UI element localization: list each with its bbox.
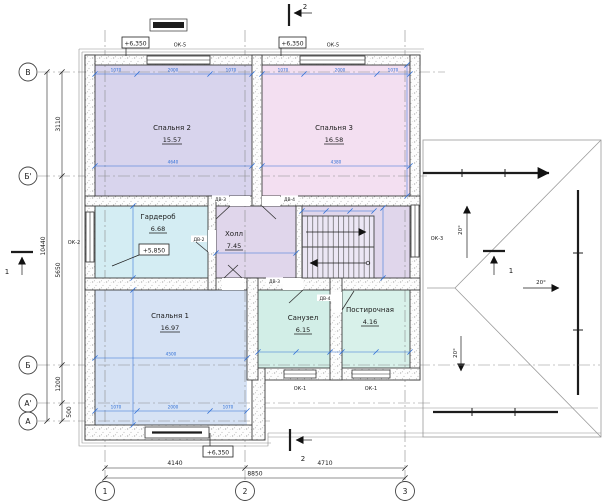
svg-text:1070: 1070 bbox=[278, 68, 289, 73]
section-marker-2-bottom: 2 bbox=[290, 429, 312, 463]
window-ok3: ОК-3 bbox=[411, 205, 443, 257]
axis-col-label: 3 bbox=[403, 487, 408, 496]
door-label: ДВ-3 bbox=[215, 197, 226, 203]
svg-text:4380: 4380 bbox=[331, 160, 342, 165]
svg-text:1070: 1070 bbox=[111, 68, 122, 73]
section-marker-2-top: 2 bbox=[289, 3, 312, 26]
dimensions-left: 3110 5650 1200 500 10440 bbox=[40, 69, 73, 423]
svg-text:8850: 8850 bbox=[247, 471, 262, 478]
dimensions-bottom: 4140 4710 8850 bbox=[102, 460, 407, 481]
room-name: Санузел bbox=[288, 314, 318, 322]
slope-angle-label: 20° bbox=[453, 348, 459, 358]
axis-row-label: А' bbox=[24, 399, 31, 408]
window-label: ОК-2 bbox=[68, 240, 80, 246]
room-name: Холл bbox=[225, 230, 243, 238]
axis-col-label: 1 bbox=[103, 487, 108, 496]
slope-angle-label: 20° bbox=[536, 280, 546, 286]
room-area: 16.97 bbox=[161, 324, 180, 332]
chimney bbox=[150, 19, 187, 31]
svg-text:2000: 2000 bbox=[168, 68, 179, 73]
axis-bubbles-bottom: 1 2 3 bbox=[96, 482, 415, 501]
level-mark-roof-left: +6,350 bbox=[122, 37, 149, 56]
svg-text:10440: 10440 bbox=[40, 236, 47, 255]
slope-angle-label: 20° bbox=[458, 225, 464, 235]
window-label: ОК-1 bbox=[365, 386, 377, 392]
door-label: ДВ-4 bbox=[284, 197, 295, 203]
axis-row-label: Б bbox=[25, 361, 30, 370]
room-laundry bbox=[342, 290, 410, 368]
room-name: Спальня 3 bbox=[315, 124, 353, 132]
level-value: +6,350 bbox=[207, 450, 229, 457]
room-area: 15.57 bbox=[163, 136, 182, 144]
axis-bubbles-left: В Б' Б А' А bbox=[19, 63, 37, 430]
door-label: ДВ-2 bbox=[193, 237, 204, 243]
section-marker-1-left: 1 bbox=[5, 252, 33, 276]
window-label: ОК-1 bbox=[294, 386, 306, 392]
axis-row-label: А bbox=[25, 417, 31, 426]
svg-text:5650: 5650 bbox=[55, 262, 62, 277]
level-value: +6,350 bbox=[281, 41, 303, 48]
svg-text:4640: 4640 bbox=[168, 160, 179, 165]
axis-col-label: 2 bbox=[243, 487, 248, 496]
svg-text:1070: 1070 bbox=[226, 68, 237, 73]
floor-plan-drawing: 20° 20° 20° 1 bbox=[0, 0, 611, 502]
axis-row-label: В bbox=[25, 68, 30, 77]
room-area: 6.15 bbox=[296, 326, 310, 334]
window-label: ОК-5 bbox=[174, 43, 186, 49]
plan-canvas: 20° 20° 20° 1 bbox=[0, 0, 611, 502]
svg-text:2000: 2000 bbox=[168, 405, 179, 410]
section-2-label: 2 bbox=[301, 455, 305, 463]
svg-text:4710: 4710 bbox=[317, 460, 332, 467]
room-name: Постирочная bbox=[346, 306, 394, 314]
door-label: ДВ-4 bbox=[319, 296, 330, 302]
svg-text:1070: 1070 bbox=[388, 68, 399, 73]
svg-text:2000: 2000 bbox=[335, 68, 346, 73]
level-mark-roof-right: +6,350 bbox=[279, 37, 306, 56]
door-label: ДВ-3 bbox=[269, 279, 280, 285]
window-bedroom1-bottom bbox=[145, 427, 209, 438]
window-ok1-right: ОК-1 bbox=[352, 370, 390, 392]
room-name: Гардероб bbox=[140, 213, 175, 221]
svg-text:3110: 3110 bbox=[55, 116, 62, 131]
room-name: Спальня 1 bbox=[151, 312, 189, 320]
window-ok5-left: ОК-5 bbox=[147, 43, 210, 65]
room-area: 7.45 bbox=[227, 242, 241, 250]
roof-outline bbox=[423, 140, 601, 437]
room-area: 16.58 bbox=[325, 136, 344, 144]
section-1-label: 1 bbox=[5, 268, 9, 276]
svg-text:1200: 1200 bbox=[55, 376, 62, 391]
room-area: 4.16 bbox=[363, 318, 377, 326]
svg-text:1070: 1070 bbox=[223, 405, 234, 410]
window-ok1-left: ОК-1 bbox=[284, 370, 316, 392]
section-2-label: 2 bbox=[303, 3, 307, 11]
section-1-label: 1 bbox=[509, 267, 513, 275]
svg-text:1070: 1070 bbox=[111, 405, 122, 410]
window-label: ОК-5 bbox=[327, 43, 339, 49]
window-ok2: ОК-2 bbox=[68, 212, 94, 262]
svg-text:500: 500 bbox=[66, 406, 73, 418]
staircase bbox=[302, 216, 374, 278]
axis-row-label: Б' bbox=[24, 172, 31, 181]
window-ok5-right: ОК-5 bbox=[300, 43, 365, 65]
room-name: Спальня 2 bbox=[153, 124, 191, 132]
svg-text:4140: 4140 bbox=[167, 460, 182, 467]
level-value: +5,850 bbox=[143, 248, 165, 255]
room-area: 6.68 bbox=[151, 225, 165, 233]
svg-text:4500: 4500 bbox=[166, 352, 177, 357]
window-label: ОК-3 bbox=[431, 236, 443, 242]
level-value: +6,350 bbox=[124, 41, 146, 48]
